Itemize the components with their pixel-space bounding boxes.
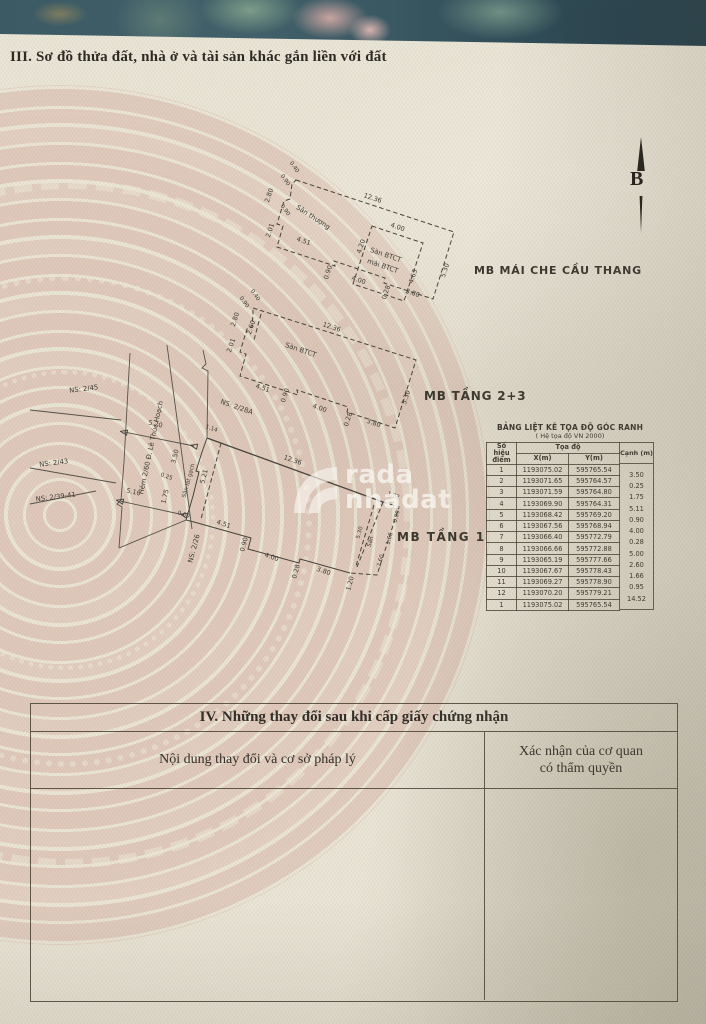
col-edge-header: Cạnh (m) [620, 443, 653, 464]
coord-cell-x: 1193069.27 [517, 577, 569, 588]
dim-label: 0.90 [322, 264, 334, 280]
neighbor-label: NS: 2/43 [39, 457, 69, 468]
coord-row: 111193069.27595778.90 [487, 577, 620, 588]
dim-label: 4.00 [390, 221, 406, 233]
dim-label: 0.40 [249, 289, 261, 303]
coord-cell-p: 1 [487, 464, 517, 475]
col-point-header: Số hiệu điểm [487, 443, 517, 465]
col-x-header: X(m) [517, 453, 569, 464]
coord-cell-x: 1193070.20 [517, 588, 569, 599]
neighbor-label: NS: 2/28A [219, 398, 254, 417]
plan-f23-caption: MB TẦNG 2+3 [424, 389, 526, 403]
edge-value: 14.52 [620, 595, 653, 603]
coord-row: 11193075.02595765.54 [487, 599, 620, 610]
dim-label: 4.00 [264, 551, 280, 563]
coord-cell-p: 10 [487, 565, 517, 576]
coord-row: 51193068.42595769.20 [487, 509, 620, 520]
coord-cell-y: 595777.66 [569, 554, 620, 565]
col-coord-header: Tọa độ [517, 443, 620, 454]
watermark-brand-bottom: nhadat [345, 488, 451, 513]
coord-cell-p: 11 [487, 577, 517, 588]
dim-label: 3.80 [366, 417, 382, 429]
dim-label: 1.66 [386, 532, 395, 546]
coord-cell-y: 595778.43 [569, 565, 620, 576]
confirm-header-line2: có thẩm quyền [540, 761, 622, 776]
coord-row: 71193066.40595772.79 [487, 532, 620, 543]
coord-cell-x: 1193075.02 [517, 464, 569, 475]
coord-cell-x: 1193075.02 [517, 599, 569, 610]
dim-label: 4.63 [407, 268, 419, 284]
coord-cell-y: 595779.21 [569, 588, 620, 599]
neighbor-label: NS: 2/45 [69, 383, 99, 394]
edge-value: 4.00 [620, 527, 653, 535]
coord-row: 21193071.65595764.57 [487, 476, 620, 487]
edge-value: 5.00 [620, 550, 653, 558]
dim-label: 2.80 [229, 311, 241, 327]
dim-label: 0.25 [159, 472, 173, 482]
dim-label: 1.20 [344, 575, 355, 591]
coord-cell-x: 1193068.42 [517, 509, 569, 520]
dim-label: 1.14 [204, 424, 218, 434]
dim-label: 0.40 [288, 161, 300, 175]
coord-cell-x: 1193066.40 [517, 532, 569, 543]
coord-cell-x: 1193067.67 [517, 565, 569, 576]
coord-cell-y: 595772.79 [569, 532, 620, 543]
coord-cell-p: 1 [487, 599, 517, 610]
coord-cell-x: 1193071.59 [517, 487, 569, 498]
section-4-content-column: Nội dung thay đổi và cơ sở pháp lý [31, 732, 485, 1000]
col-point-line1: Số hiệu [493, 442, 509, 457]
coord-table-body: 11193075.02595765.5421193071.65595764.57… [487, 464, 620, 610]
coord-cell-x: 1193067.56 [517, 520, 569, 531]
dim-label: 0.90 [238, 536, 249, 552]
edge-value: 0.25 [620, 482, 653, 490]
coord-row: 41193069.90595764.31 [487, 498, 620, 509]
coord-cell-p: 7 [487, 532, 517, 543]
dim-label: 0.90 [279, 174, 291, 188]
coord-cell-p: 5 [487, 509, 517, 520]
coord-row: 31193071.59595764.80 [487, 487, 620, 498]
coord-row: 91193065.19595777.66 [487, 554, 620, 565]
dim-label: 3.80 [405, 287, 421, 299]
coord-cell-x: 1193066.66 [517, 543, 569, 554]
edge-col-values: 3.500.251.755.110.904.000.285.002.601.66… [620, 464, 653, 609]
dim-label: 5.30 [356, 526, 365, 540]
edge-value: 0.28 [620, 538, 653, 546]
coord-cell-y: 595769.20 [569, 509, 620, 520]
dim-label: 5.21 [198, 468, 209, 484]
edge-column: Cạnh (m) 3.500.251.755.110.904.000.285.0… [620, 442, 654, 610]
coordinate-table-grid: Số hiệu điểm Tọa độ X(m) Y(m) 11193075.0… [486, 442, 620, 611]
confirm-header-line1: Xác nhận của cơ quan [519, 744, 643, 759]
coord-cell-y: 595764.31 [569, 498, 620, 509]
dim-label: 0.90 [238, 296, 250, 310]
neighbor-label: NS: 2/39-41 [35, 491, 76, 504]
confirm-column-header: Xác nhận của cơ quan có thẩm quyền [485, 732, 677, 789]
section-4-confirm-column: Xác nhận của cơ quan có thẩm quyền [485, 732, 677, 1000]
dim-label: 4.51 [296, 235, 312, 247]
dim-label: 3.50 [169, 448, 180, 464]
dim-label: 2.01 [225, 337, 237, 353]
coord-cell-y: 595765.54 [569, 464, 620, 475]
yard-label: Sân [366, 535, 376, 547]
plan-roof-caption: MB MÁI CHE CẦU THANG [474, 264, 642, 277]
dim-label: 2.01 [264, 222, 276, 238]
coord-cell-y: 595764.80 [569, 487, 620, 498]
col-point-line2: điểm [492, 456, 510, 464]
dim-label: 1.75 [159, 488, 170, 504]
coord-row: 81193066.66595772.88 [487, 543, 620, 554]
dim-label: 0.28 [290, 563, 301, 579]
coord-cell-p: 6 [487, 520, 517, 531]
dim-label: 2.60 [245, 319, 257, 335]
section-4: IV. Những thay đổi sau khi cấp giấy chứn… [30, 703, 678, 1002]
north-arrow [637, 137, 645, 233]
content-column-header: Nội dung thay đổi và cơ sở pháp lý [31, 732, 484, 789]
neighbor-label: NS: 2/26 [186, 533, 201, 563]
dim-label: 0.28 [342, 411, 354, 427]
coord-cell-p: 2 [487, 476, 517, 487]
edge-value: 1.75 [620, 493, 653, 501]
dim-label: 5.30 [400, 389, 412, 405]
terrace-label: Sân thượng [295, 203, 332, 231]
dim-label: 4.00 [312, 402, 328, 414]
coord-cell-y: 595765.54 [569, 599, 620, 610]
coord-row: 11193075.02595765.54 [487, 464, 620, 475]
edge-value: 1.66 [620, 572, 653, 580]
coord-row: 101193067.67595778.43 [487, 565, 620, 576]
dim-label: 2.60 [377, 554, 386, 568]
plan-f1-lines [30, 345, 399, 575]
edge-value: 0.90 [620, 516, 653, 524]
coord-cell-y: 595768.94 [569, 520, 620, 531]
slab-label: Sàn BTCT [284, 341, 318, 359]
section-4-title: IV. Những thay đổi sau khi cấp giấy chứn… [31, 704, 677, 732]
alley-label: Hẻm 2/60 Đ. Lê Thúc Hoạch [137, 400, 165, 495]
coord-cell-x: 1193069.90 [517, 498, 569, 509]
col-y-header: Y(m) [569, 453, 620, 464]
dim-label: 12.36 [322, 320, 342, 334]
coord-cell-p: 3 [487, 487, 517, 498]
plan-f1-caption: MB TẦNG 1 [397, 530, 486, 544]
certificate-paper: III. Sơ đồ thửa đất, nhà ở và tài sản kh… [0, 0, 706, 1024]
dim-label: 5.30 [439, 262, 451, 278]
coord-row: 61193067.56595768.94 [487, 520, 620, 531]
dim-label: 2.80 [263, 187, 275, 203]
edge-value: 5.11 [620, 505, 653, 513]
coord-cell-p: 12 [487, 588, 517, 599]
coord-cell-x: 1193071.65 [517, 476, 569, 487]
coordinate-table-title: BẢNG LIỆT KÊ TỌA ĐỘ GÓC RANH [486, 423, 654, 432]
coordinate-table-subtitle: ( Hệ tọa độ VN 2000) [486, 432, 654, 440]
coordinate-table: BẢNG LIỆT KÊ TỌA ĐỘ GÓC RANH ( Hệ tọa độ… [486, 423, 654, 610]
coord-cell-y: 595778.90 [569, 577, 620, 588]
edge-value: 0.95 [620, 583, 653, 591]
coord-cell-p: 9 [487, 554, 517, 565]
coord-cell-p: 4 [487, 498, 517, 509]
coord-cell-x: 1193065.19 [517, 554, 569, 565]
coord-cell-p: 8 [487, 543, 517, 554]
watermark: rada nhadat [292, 461, 451, 515]
dim-label: 0.28 [380, 284, 392, 300]
coord-cell-y: 595764.57 [569, 476, 620, 487]
dim-label: 4.51 [255, 382, 271, 394]
edge-value: 3.50 [620, 471, 653, 479]
coord-row: 121193070.20595779.21 [487, 588, 620, 599]
edge-value: 2.60 [620, 561, 653, 569]
document-photo: III. Sơ đồ thửa đất, nhà ở và tài sản kh… [0, 0, 706, 1024]
coord-cell-y: 595772.88 [569, 543, 620, 554]
watermark-logo-icon [292, 461, 338, 515]
